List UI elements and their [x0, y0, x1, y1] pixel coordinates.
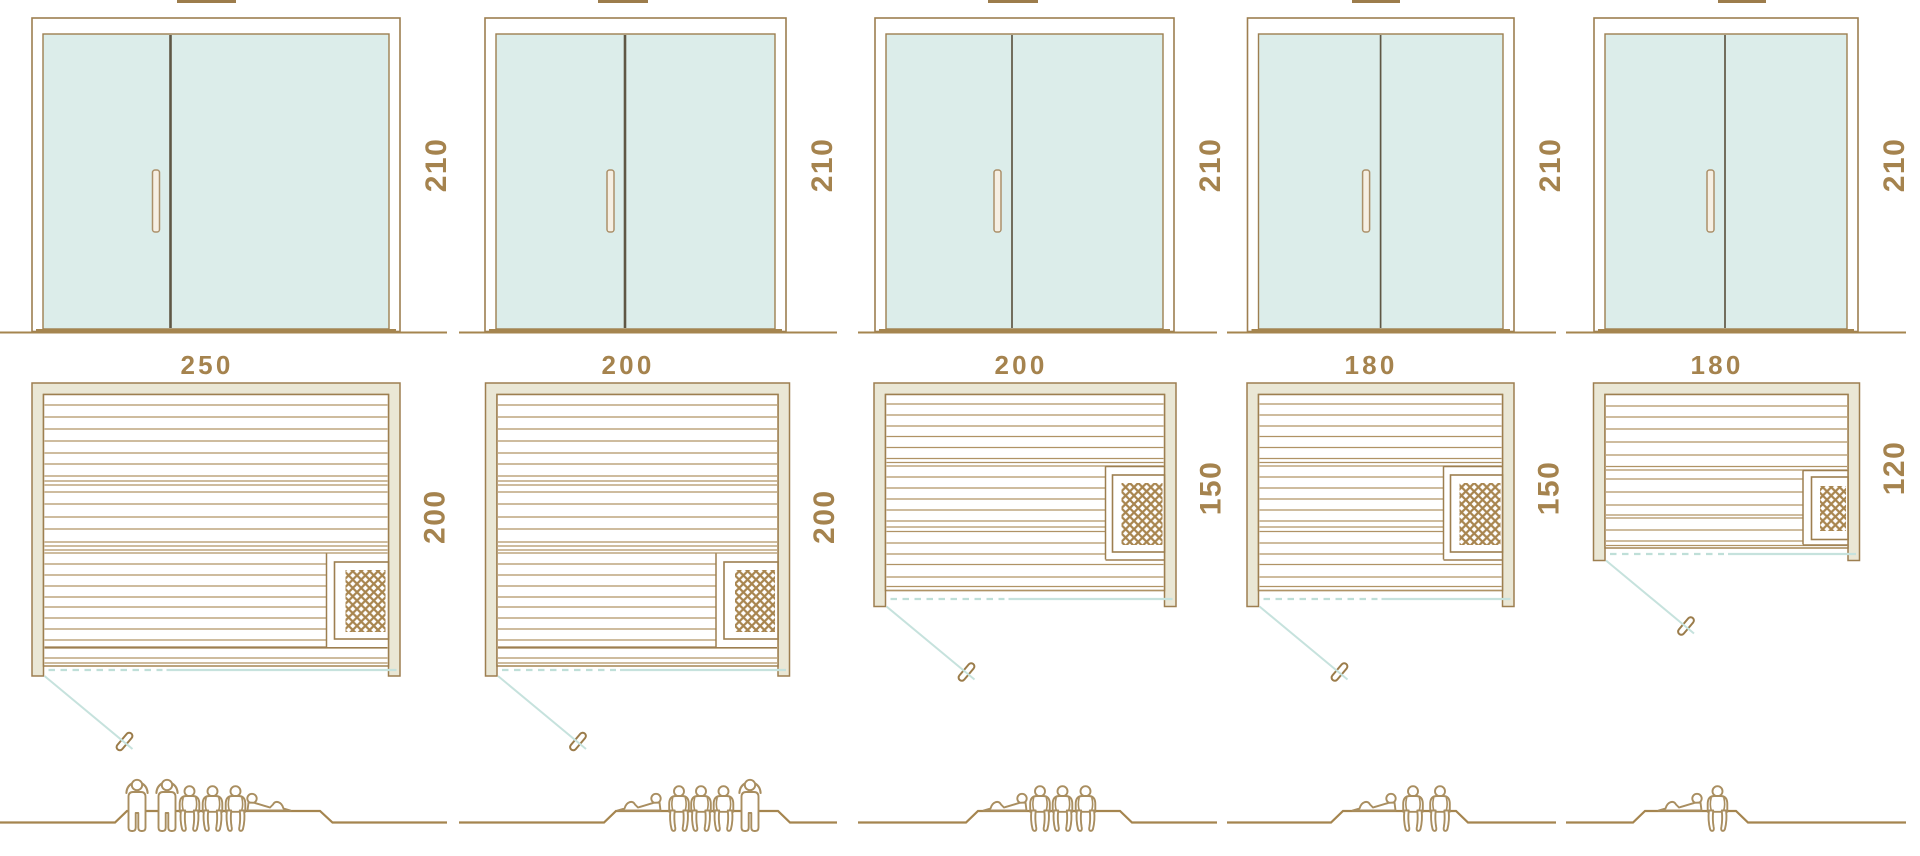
svg-text:180: 180 — [1345, 350, 1398, 380]
svg-text:210: 210 — [1534, 138, 1567, 193]
svg-text:250: 250 — [181, 350, 234, 380]
svg-text:200: 200 — [808, 489, 841, 544]
svg-text:150: 150 — [1532, 461, 1565, 516]
svg-text:150: 150 — [1194, 461, 1227, 516]
svg-text:120: 120 — [1878, 441, 1911, 496]
svg-text:180: 180 — [1691, 350, 1744, 380]
svg-text:200: 200 — [995, 350, 1048, 380]
svg-text:200: 200 — [418, 489, 451, 544]
svg-text:210: 210 — [1878, 138, 1911, 193]
svg-text:210: 210 — [420, 138, 453, 193]
svg-text:210: 210 — [1194, 138, 1227, 193]
svg-text:200: 200 — [602, 350, 655, 380]
svg-text:210: 210 — [806, 138, 839, 193]
